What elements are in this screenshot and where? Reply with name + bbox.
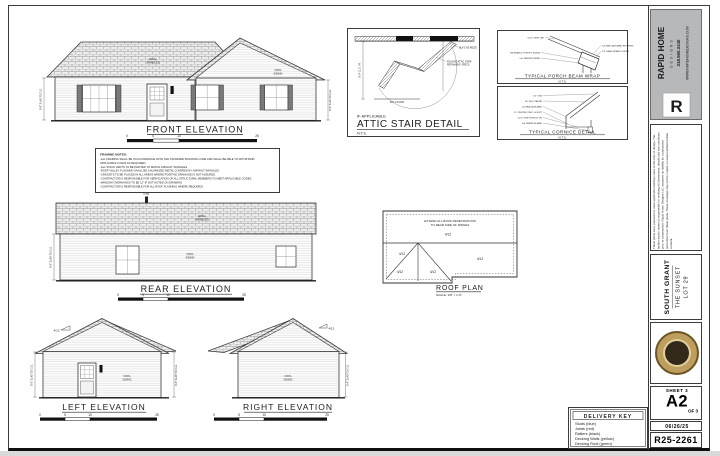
folding-stair <box>379 42 457 89</box>
svg-text:25: 25 <box>325 413 329 417</box>
svg-text:25: 25 <box>255 134 259 138</box>
svg-text:8'-0" SLAB TO CLG.: 8'-0" SLAB TO CLG. <box>346 364 349 386</box>
svg-text:25: 25 <box>242 293 246 297</box>
date-box: 06/26/25 <box>650 421 702 431</box>
rear-elevation-title: REAR ELEVATION <box>141 284 232 294</box>
roof-plan-scale: SCALE: 1/8" = 1'-0" <box>436 293 462 297</box>
roof-plan-drawing: EXTEND ALL ROOF PENETRATIONS TO REAR SID… <box>378 203 523 298</box>
callout: 15# FELT PAPER <box>525 100 543 103</box>
scale-bar: 0 5 10 25 <box>39 413 159 421</box>
detail-prelabel: IF APPLICABLE <box>357 114 386 119</box>
company-subtitle: DESIGNS <box>670 38 674 68</box>
key-item: Decking Roof (green) <box>575 441 613 446</box>
callout: 1x6 FASCIA BOARD <box>522 105 543 108</box>
framing-notes-box: FRAMING NOTES: -ALL FRAMING SHALL BE IN … <box>95 148 280 193</box>
company-logo-block: RAPID HOME DESIGNS 318.560.3440 WWW.RAPI… <box>650 9 702 120</box>
svg-text:10: 10 <box>177 134 181 138</box>
svg-text:SIDING: SIDING <box>284 378 293 382</box>
disclaimer-box: These plans were prepared to meet applic… <box>650 124 702 251</box>
rear-roof <box>56 203 316 234</box>
front-window-pair <box>77 85 121 112</box>
porch-beam <box>578 52 599 70</box>
page-edge-shadow <box>0 451 720 456</box>
svg-text:10: 10 <box>262 413 266 417</box>
front-door <box>147 84 167 121</box>
rear-window-2 <box>276 246 296 267</box>
issue-date: 06/26/25 <box>651 422 703 432</box>
dimension-line-left <box>52 234 56 280</box>
plan-sheet-page: ARCH. SHINGLES VINYL SIDING 8'-0" SLAB T… <box>0 0 720 456</box>
svg-text:4/12: 4/12 <box>399 252 405 256</box>
plan-id: R25-2261 <box>651 433 701 447</box>
callout: 1x4 TRIM RETURNS <box>519 58 540 60</box>
roof-material-note: ARCH. <box>149 57 157 61</box>
slope-flag <box>61 326 70 330</box>
delivery-key-title: DELIVERY KEY <box>584 414 632 420</box>
svg-text:8'-0" SLAB TO CLG.: 8'-0" SLAB TO CLG. <box>329 89 332 111</box>
svg-text:ARCH.: ARCH. <box>198 214 206 218</box>
cornice-detail-drawing: 1/2" OSB 15# FELT PAPER 1x6 FASCIA BOARD… <box>498 87 627 139</box>
porch-light-icon <box>100 365 103 373</box>
callout: 1x6 FASCIA BOARD RETURNS <box>602 44 634 47</box>
callout: 1/2" BEAD BOARD SOFFIT <box>602 50 630 53</box>
dimension-line-left <box>42 78 46 120</box>
front-gable-window-2 <box>260 85 293 110</box>
svg-text:SIDING: SIDING <box>123 378 132 382</box>
svg-text:SHINGLES: SHINGLES <box>195 218 208 222</box>
roof-plan-title: ROOF PLAN <box>436 285 484 292</box>
right-elevation-drawing: VINYL SIDING 4/12 8'-0" SLAB TO CLG. RIG… <box>200 314 350 426</box>
callout: 1-1/2" DRIP EDGE (TYP) <box>517 117 542 119</box>
floor-note: FIN. FLOOR <box>390 101 404 104</box>
titleblock-divider <box>648 6 649 450</box>
delivery-key-content: DELIVERY KEY Studs (blue) Joists (red) R… <box>569 408 647 448</box>
front-elevation-title: FRONT ELEVATION <box>146 125 244 135</box>
svg-text:SIDING: SIDING <box>274 72 283 76</box>
svg-text:8'-0" SLAB TO CLG.: 8'-0" SLAB TO CLG. <box>50 246 53 268</box>
dimension-line-left <box>33 352 37 397</box>
sheet-number-box: SHEET 3 A2 OF 3 <box>650 386 702 420</box>
svg-text:5: 5 <box>142 293 144 297</box>
note-line: -ALL STACK VENTS TO BE PAINTED TO MATCH … <box>100 165 188 169</box>
svg-text:4/12: 4/12 <box>430 270 436 274</box>
note-line: -ALL FRAMING SHALL BE IN ACCORDANCE WITH… <box>100 157 255 161</box>
svg-text:0: 0 <box>126 134 128 138</box>
company-name: RAPID HOME <box>657 26 666 79</box>
certification-seal <box>655 331 699 375</box>
svg-text:10: 10 <box>166 293 170 297</box>
left-elevation-title: LEFT ELEVATION <box>62 402 145 412</box>
seal-emblem <box>665 341 689 365</box>
svg-text:0: 0 <box>213 413 215 417</box>
svg-text:0: 0 <box>117 293 119 297</box>
svg-text:VINYL: VINYL <box>123 374 131 378</box>
note-line: APPLICABLE LOADS AS REQUIRED. <box>100 161 146 165</box>
note-line: -WINDOW OVERHANGS TO BE 12" IF NOT NOTED… <box>100 180 183 184</box>
svg-text:0: 0 <box>39 413 41 417</box>
slope-label: 4/12 <box>329 327 335 331</box>
note-line: -CRICKETS TO BE PLACED IN ALL AREAS WHER… <box>100 173 216 177</box>
attic-stair-detail-box: 8'-0" CLG. HT. FIN. FLOOR BLK'G AS REQ'D… <box>347 28 480 137</box>
left-elevation-drawing: VINYL SIDING 4/12 8'-0" SLAB TO CLG. 8'-… <box>30 314 180 426</box>
svg-text:5: 5 <box>238 413 240 417</box>
detail-scale: N.T.S. <box>357 131 367 135</box>
roof-vent-pipe <box>145 197 148 204</box>
wall-height-dim: 8'-0" SLAB TO CLG. <box>39 88 42 110</box>
callout: ON BEAM (TYP BOTH SIDES) <box>510 51 540 54</box>
attic-stair-detail-title: ATTIC STAIR DETAIL <box>357 119 463 130</box>
vent-note: V.T.R. <box>143 193 150 196</box>
porch-beam-wrap-box: 1-1/4" DRIP CAP 1x6 FASCIA BOARD RETURNS… <box>497 30 628 84</box>
svg-text:5: 5 <box>152 134 154 138</box>
company-logo-letter: R <box>670 97 682 116</box>
header-block <box>396 36 413 42</box>
porch-beam-wrap-title: TYPICAL PORCH BEAM WRAP <box>525 74 600 79</box>
plan-id-box: R25-2261 <box>650 432 702 448</box>
rafter-lines <box>566 92 600 118</box>
plan-name: THE SUNSET <box>675 266 681 308</box>
note-line: -CONTRACTOR IS RESPONSIBLE FOR VERIFICAT… <box>100 177 252 181</box>
scale-bar: 0 5 10 25 <box>213 413 329 421</box>
left-door <box>78 363 96 397</box>
callout: 1-1/4" DRIP CAP <box>527 36 544 39</box>
company-website: WWW.RAPIDHOMEDESIGNS.COM <box>686 26 690 80</box>
rear-elevation-drawing: V.T.R. ARCH. SHINGLES VINYL SIDING 8'-0"… <box>50 191 325 303</box>
left-wall <box>43 352 161 398</box>
cornice-detail-box: 1/2" OSB 15# FELT PAPER 1x6 FASCIA BOARD… <box>497 86 628 140</box>
header-block <box>430 36 458 42</box>
project-name: SOUTH GRANT <box>663 260 671 315</box>
divider <box>673 266 674 309</box>
svg-text:5: 5 <box>64 413 66 417</box>
svg-text:25: 25 <box>155 413 159 417</box>
slope-label: 4/12 <box>54 329 60 333</box>
svg-text:4/12: 4/12 <box>397 270 403 274</box>
sheet-number: A2 <box>666 393 688 409</box>
delivery-key-box: DELIVERY KEY Studs (blue) Joists (red) R… <box>568 407 648 449</box>
callout: 12" VENTED VINYL SOFFIT <box>514 112 543 114</box>
disclaimer-text: These plans were prepared to meet applic… <box>650 124 675 251</box>
callout: FOLDING ATTIC STAIR <box>447 60 472 63</box>
company-phone: 318.560.3440 <box>676 39 681 66</box>
scale-bar: 0 5 10 25 <box>126 134 259 142</box>
svg-text:4/12: 4/12 <box>477 257 483 261</box>
ceiling-height-dim: 8'-0" CLG. HT. <box>358 62 361 78</box>
svg-text:SIDING: SIDING <box>186 256 195 260</box>
rear-window-1 <box>116 246 139 274</box>
slope-label: 4/12 <box>445 233 451 237</box>
sheet-of-label: OF 3 <box>688 409 703 414</box>
svg-text:PER MANUF. SPECS: PER MANUF. SPECS <box>447 64 470 67</box>
attic-stair-detail-drawing: 8'-0" CLG. HT. FIN. FLOOR BLK'G AS REQ'D… <box>348 29 479 136</box>
right-elevation-title: RIGHT ELEVATION <box>243 402 333 412</box>
slope-flag <box>319 324 327 328</box>
front-gable-window-1 <box>191 85 224 110</box>
note-line: -ROOF VALLEY FLASHING SHALL BE GALVANIZE… <box>100 169 220 173</box>
callout: 1/2" OSB <box>533 95 543 97</box>
svg-text:VINYL: VINYL <box>284 374 292 378</box>
lot-number: LOT 29 <box>683 276 689 299</box>
svg-text:VINYL: VINYL <box>186 252 194 256</box>
cornice-detail-title: TYPICAL CORNICE DETAIL <box>529 130 596 135</box>
svg-text:TO REAR SIDE OF RIDGES: TO REAR SIDE OF RIDGES <box>431 223 469 227</box>
project-box: SOUTH GRANT THE SUNSET LOT 29 <box>650 254 702 320</box>
svg-text:10: 10 <box>88 413 92 417</box>
porch-light-icon <box>171 86 174 94</box>
svg-text:8'-0" SLAB TO CLG.: 8'-0" SLAB TO CLG. <box>175 364 178 386</box>
front-wall-left <box>55 77 195 121</box>
detail-scale: N.T.S. <box>558 79 566 83</box>
siding-material-note: VINYL <box>274 68 282 72</box>
callout: BLK'G AS REQ'D <box>459 46 477 49</box>
note-line: -CONTRACTOR IS RESPONSIBLE FOR ALL ROOF … <box>100 184 204 188</box>
front-elevation-drawing: ARCH. SHINGLES VINYL SIDING 8'-0" SLAB T… <box>35 14 335 146</box>
porch-beam-wrap-drawing: 1-1/4" DRIP CAP 1x6 FASCIA BOARD RETURNS… <box>498 31 627 83</box>
svg-text:8'-0" SLAB TO CLG.: 8'-0" SLAB TO CLG. <box>31 364 34 386</box>
seal-box <box>650 322 702 384</box>
dimension-line <box>361 42 365 100</box>
framing-notes-text: FRAMING NOTES: -ALL FRAMING SHALL BE IN … <box>96 149 279 192</box>
svg-text:SHINGLES: SHINGLES <box>146 61 159 65</box>
callout: 1x4 FRIEZE BOARD <box>522 122 543 125</box>
framing-notes-title: FRAMING NOTES: <box>100 153 127 157</box>
detail-scale: N.T.S. <box>558 135 566 139</box>
